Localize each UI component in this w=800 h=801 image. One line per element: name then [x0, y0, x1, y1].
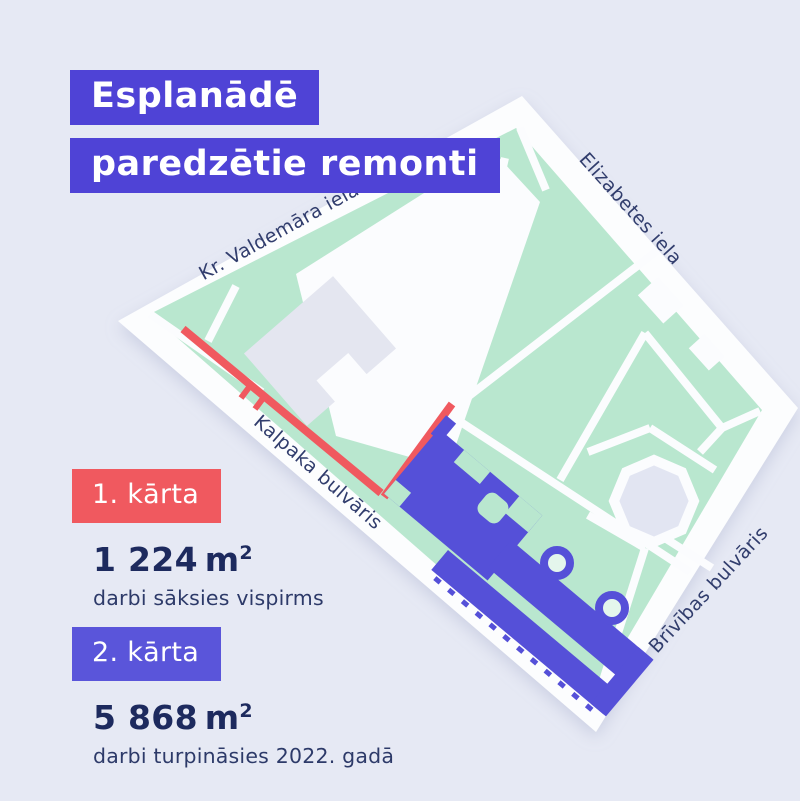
phase1-area-unit: m [205, 540, 240, 579]
phase2-badge: 2. kārta [72, 627, 221, 681]
phase2-description: darbi turpināsies 2022. gadā [93, 744, 394, 768]
legend-phase2: 2. kārta 5 868 m2 darbi turpināsies 2022… [72, 627, 394, 768]
title-line-2: paredzētie remonti [70, 138, 500, 193]
phase1-area-number: 1 224 [93, 540, 198, 579]
page-title: Esplanādē paredzētie remonti [70, 70, 500, 206]
phase2-area-value: 5 868 m2 [93, 698, 394, 737]
fountain-circle-1 [544, 550, 570, 576]
infographic-canvas: Kr. Valdemāra iela Elizabetes iela Kalpa… [0, 0, 800, 801]
phase1-area-exponent: 2 [239, 542, 253, 564]
phase2-area-number: 5 868 [93, 698, 198, 737]
phase2-area-exponent: 2 [239, 700, 253, 722]
legend-phase1: 1. kārta 1 224 m2 darbi sāksies vispirms [72, 469, 324, 610]
title-line-1: Esplanādē [70, 70, 319, 125]
phase1-description: darbi sāksies vispirms [93, 586, 324, 610]
fountain-circle-2 [599, 595, 625, 621]
phase2-area-unit: m [205, 698, 240, 737]
cathedral-octagon [614, 460, 694, 542]
phase1-badge: 1. kārta [72, 469, 221, 523]
phase1-area-value: 1 224 m2 [93, 540, 324, 579]
